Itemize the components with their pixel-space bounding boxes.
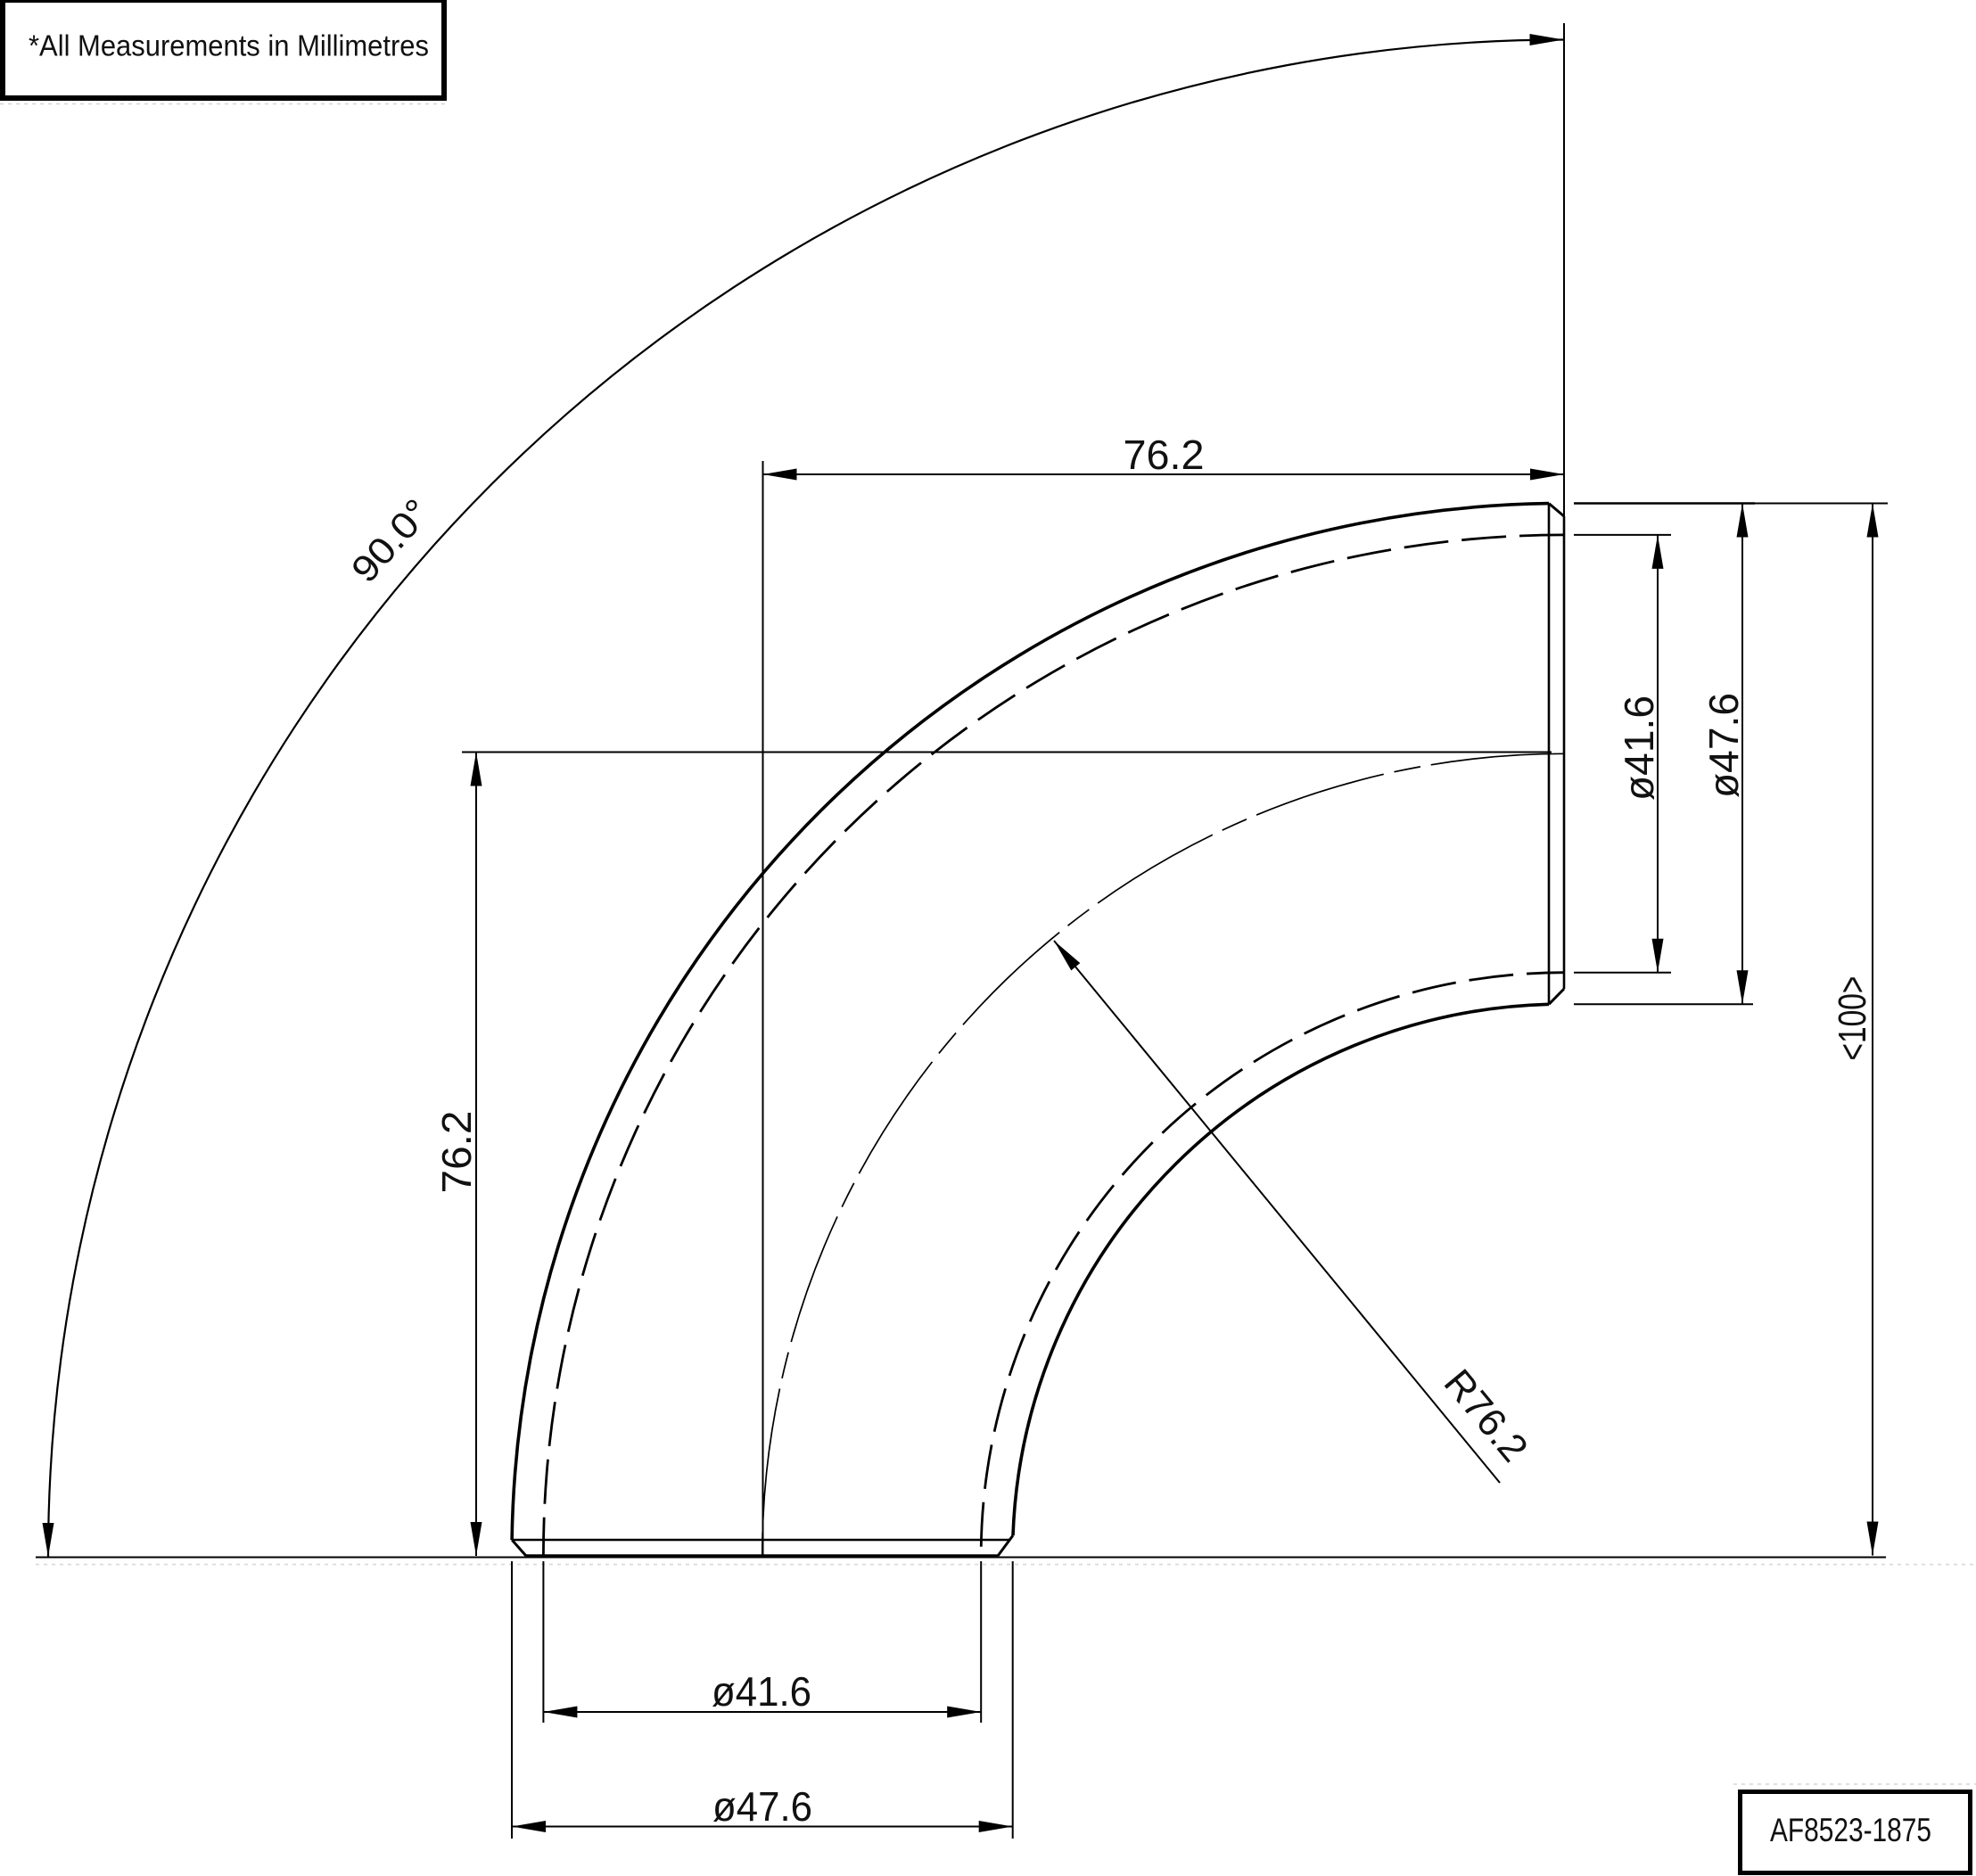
svg-text:*All Measurements in Millimetr: *All Measurements in Millimetres xyxy=(29,29,429,62)
svg-text:76.2: 76.2 xyxy=(433,1111,480,1194)
svg-text:AF8523-1875: AF8523-1875 xyxy=(1770,1812,1931,1848)
svg-text:ø47.6: ø47.6 xyxy=(712,1783,812,1830)
svg-text:<100>: <100> xyxy=(1831,976,1874,1061)
svg-text:ø41.6: ø41.6 xyxy=(1616,695,1662,801)
svg-text:ø41.6: ø41.6 xyxy=(712,1668,811,1715)
svg-text:76.2: 76.2 xyxy=(1124,432,1205,478)
svg-text:ø47.6: ø47.6 xyxy=(1700,693,1747,798)
